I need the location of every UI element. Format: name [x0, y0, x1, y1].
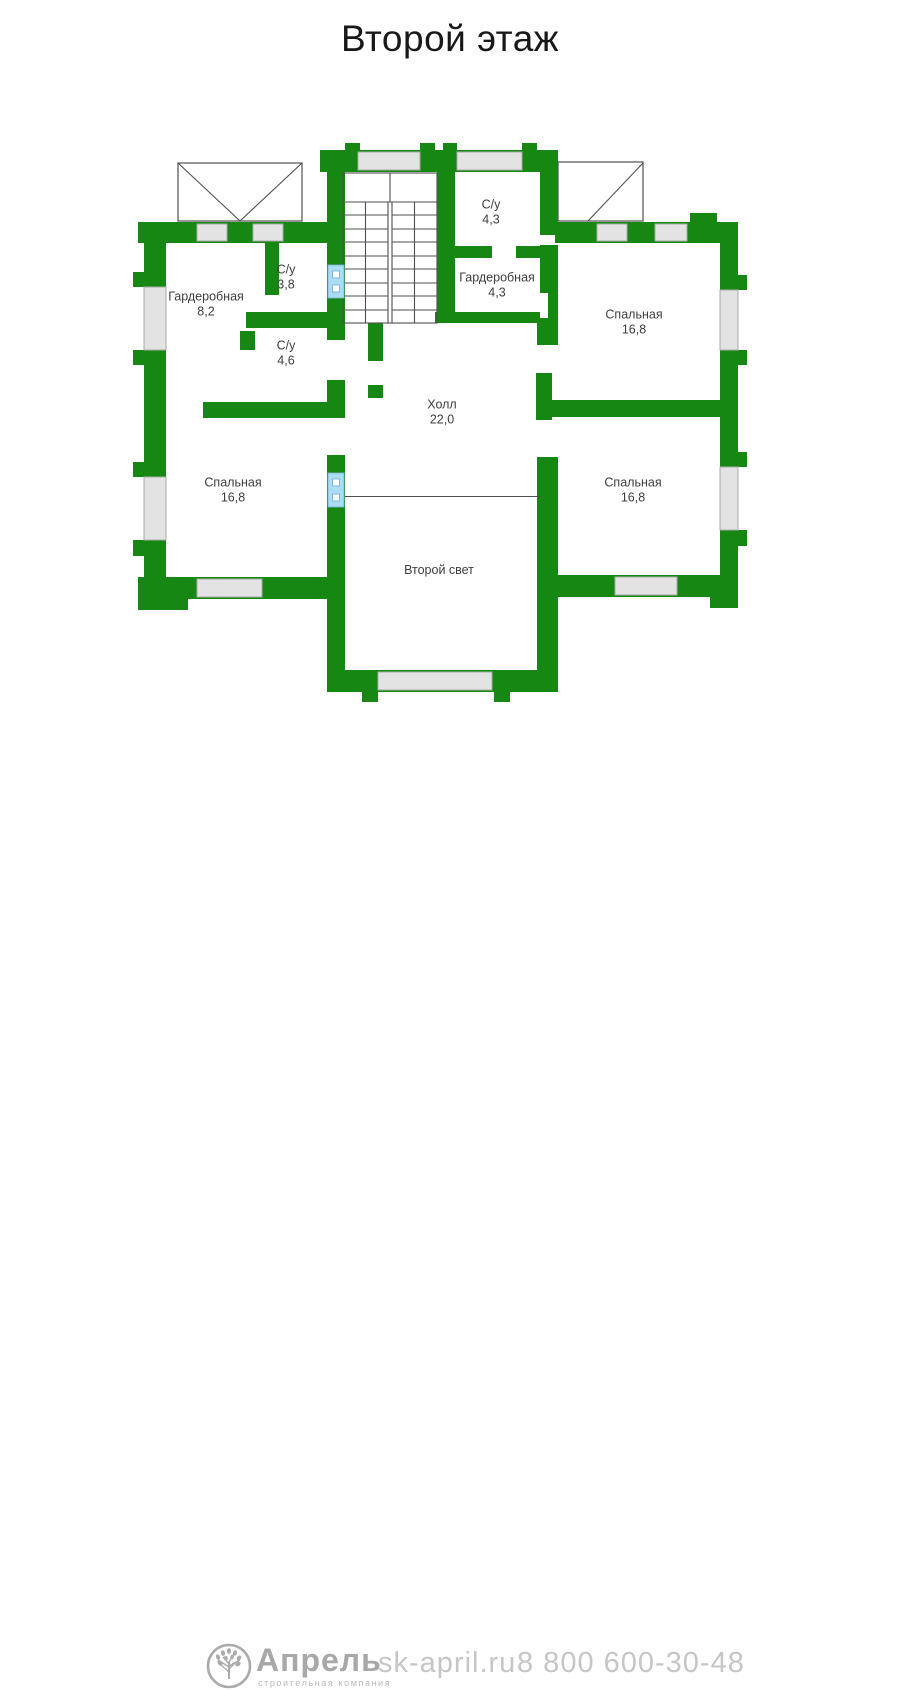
roof-outline-left: [178, 163, 302, 221]
staircase: [343, 173, 437, 323]
room-label: Второй свет: [404, 563, 474, 578]
room-label: Холл22,0: [427, 398, 456, 427]
brand-name: Апрель: [256, 1642, 382, 1679]
floor-plan-drawing: [0, 0, 900, 900]
footer: Апрель строительная компания sk-april.ru…: [0, 818, 900, 888]
room-label: С/у4,3: [482, 198, 501, 227]
room-label: Гардеробная8,2: [168, 290, 244, 319]
room-label: Гардеробная4,3: [459, 271, 535, 300]
floor-plan-canvas: Второй этаж: [0, 0, 900, 900]
room-label: С/у3,8: [277, 263, 296, 292]
brand-subtitle: строительная компания: [258, 1678, 391, 1688]
room-label: Спальная16,8: [204, 476, 261, 505]
company-logo: [205, 1642, 253, 1690]
roof-outline-right: [558, 162, 643, 221]
room-label: Спальная16,8: [605, 308, 662, 337]
room-label: С/у4,6: [277, 339, 296, 368]
room-label: Спальная16,8: [604, 476, 661, 505]
website-url: sk-april.ru: [378, 1647, 516, 1680]
door-marker-top: [328, 265, 344, 298]
door-marker-bottom: [328, 473, 344, 507]
tree-icon: [208, 1645, 250, 1687]
phone-number: 8 800 600-30-48: [517, 1647, 745, 1680]
